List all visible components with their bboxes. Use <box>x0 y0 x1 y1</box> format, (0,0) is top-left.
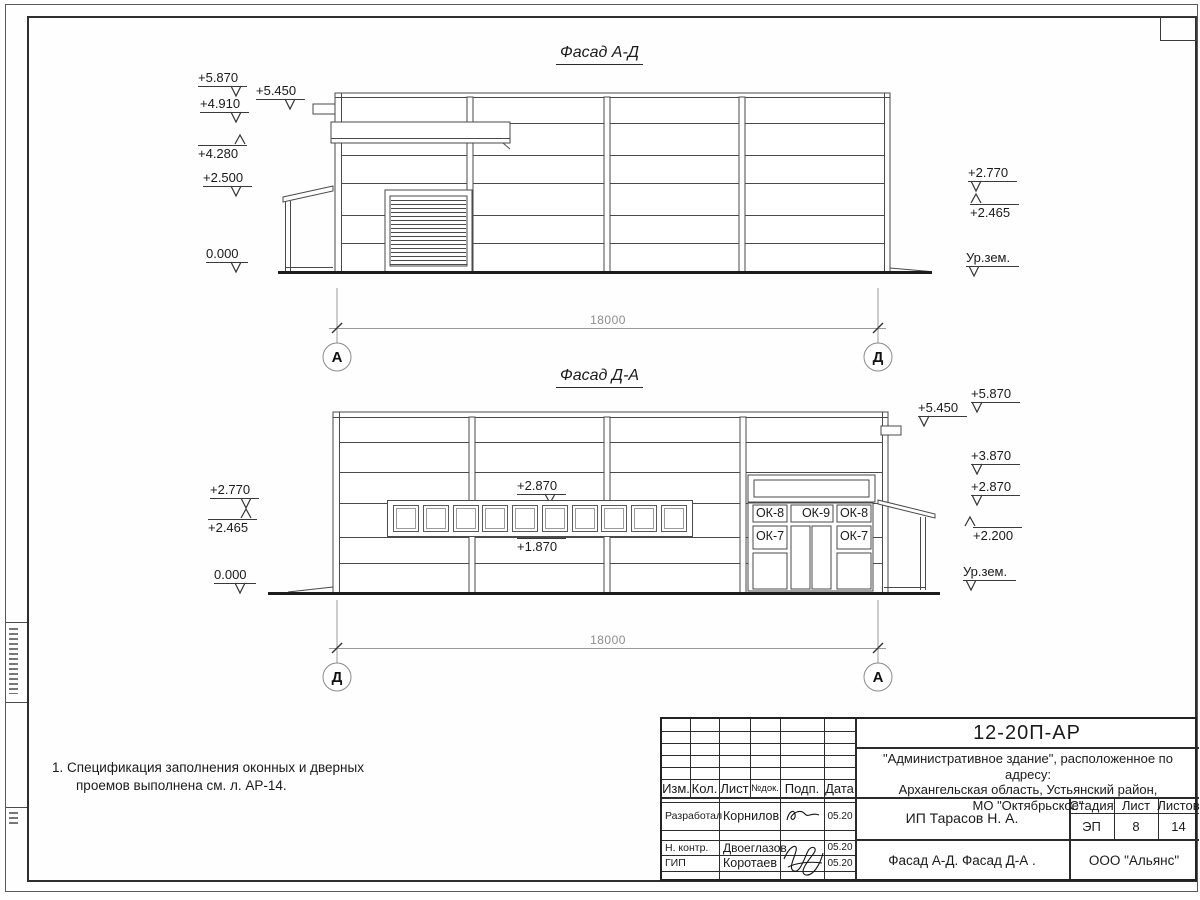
tb-header-ndok: №док. <box>750 779 780 797</box>
title-block-line <box>662 830 855 831</box>
note-line1: 1. Спецификация заполнения оконных и две… <box>52 760 364 775</box>
tb-name-ncontrol: Двоеглазов <box>720 840 780 855</box>
window <box>542 505 568 532</box>
signature-ncontrol-gip <box>780 839 826 879</box>
window <box>423 505 449 532</box>
roof-pipe <box>881 426 901 435</box>
axis-circle-label: А <box>863 669 893 686</box>
axis-circle-label: Д <box>863 349 893 366</box>
title-block-line <box>662 743 855 744</box>
elevation-mark: +2.770 <box>210 483 259 499</box>
tb-role-developer: Разработал <box>662 802 719 830</box>
tb-sheet-title: Фасад А-Д. Фасад Д-А . <box>855 839 1069 881</box>
elevation-mark: +4.910 <box>200 97 249 113</box>
tb-stage-value: ЭП <box>1069 813 1114 839</box>
elevation-mark: Ур.зем. <box>966 251 1019 267</box>
title-block-line <box>662 767 855 768</box>
elevation-mark: +2.465 <box>970 204 1019 220</box>
title-block-line <box>855 747 1199 749</box>
title-block-line <box>662 755 855 756</box>
tb-header-izm: Изм. <box>662 779 690 797</box>
elevation-mark: +5.870 <box>971 387 1020 403</box>
window-label-ok7: ОК-7 <box>753 529 787 543</box>
tb-sheets-label: Листов <box>1158 797 1199 813</box>
tb-name-gip: Коротаев <box>720 855 780 871</box>
tb-client: ИП Тарасов Н. А. <box>855 797 1069 839</box>
tb-role-ncontrol: Н. контр. <box>662 840 719 855</box>
entrance-door-leaf <box>812 526 831 589</box>
note-line2: проемов выполнена см. л. АР-14. <box>76 778 287 793</box>
tb-doc-code: 12-20П-АР <box>855 719 1199 747</box>
elevation-mark: +2.870 <box>971 480 1020 496</box>
window-label-ok8: ОК-8 <box>837 506 871 520</box>
elevation-mark: 0.000 <box>214 568 256 584</box>
window-label-ok7: ОК-7 <box>837 529 871 543</box>
window <box>512 505 538 532</box>
elevation-mark: +2.465 <box>208 519 257 535</box>
window <box>631 505 657 532</box>
elevation-mark: +3.870 <box>971 449 1020 465</box>
tb-stage-label: Стадия <box>1069 797 1114 813</box>
dimension-label: 18000 <box>585 633 631 647</box>
window <box>601 505 627 532</box>
tb-project-line1: "Административное здание", расположенное… <box>860 751 1196 782</box>
facade1-building <box>283 93 930 272</box>
drawing-sheet: Фасад А-Д Фасад Д-А +5.870 +5.450 +4.910… <box>0 0 1200 900</box>
elevation-mark: +5.870 <box>198 71 247 87</box>
elevation-mark: +2.200 <box>973 527 1022 543</box>
tb-project-line2: Архангельская область, Устьянский район, <box>860 782 1196 798</box>
tb-name-developer: Корнилов <box>720 802 780 830</box>
tb-header-kol: Кол. <box>690 779 719 797</box>
elevation-mark: +4.280 <box>198 145 247 161</box>
elevation-mark: +2.870 <box>517 479 566 495</box>
tb-company: ООО "Альянс" <box>1069 839 1199 881</box>
facade1-title: Фасад А-Д <box>556 44 643 65</box>
window <box>482 505 508 532</box>
elevation-mark: +1.870 <box>517 538 566 554</box>
window <box>661 505 687 532</box>
tb-header-data: Дата <box>824 779 855 797</box>
elevation-mark: +2.770 <box>968 166 1017 182</box>
lean-to-left <box>283 186 333 272</box>
title-block: Изм. Кол. Лист №док. Подп. Дата Разработ… <box>660 717 1197 881</box>
tb-header-list: Лист <box>719 779 750 797</box>
elevation-mark: 0.000 <box>206 247 248 263</box>
roof-pipe <box>313 104 335 114</box>
window <box>453 505 479 532</box>
elevation-mark: +2.500 <box>203 171 252 187</box>
entrance-canopy <box>331 122 510 143</box>
elevation-mark: Ур.зем. <box>963 565 1016 581</box>
window <box>572 505 598 532</box>
elevation-mark: +5.450 <box>256 84 305 100</box>
window-label-ok9: ОК-9 <box>795 506 837 520</box>
tb-role-gip: ГИП <box>662 855 719 871</box>
window <box>393 505 419 532</box>
window-band <box>387 500 693 537</box>
window-label-ok8: ОК-8 <box>753 506 787 520</box>
title-block-line <box>662 871 855 872</box>
tb-sheet-number: 8 <box>1114 813 1158 839</box>
tb-header-podp: Подп. <box>780 779 824 797</box>
tb-sheet-label: Лист <box>1114 797 1158 813</box>
facade1-dimension <box>323 288 892 371</box>
roller-door <box>385 190 472 272</box>
signature-developer <box>784 804 822 828</box>
facade2-title: Фасад Д-А <box>556 367 643 388</box>
title-block-line <box>662 731 855 732</box>
tb-date-ncontrol: 05.20 <box>825 840 855 855</box>
entrance-door-leaf <box>791 526 810 589</box>
title-block-line <box>662 797 855 799</box>
axis-circle-label: А <box>322 349 352 366</box>
tb-date-gip: 05.20 <box>825 855 855 871</box>
dimension-label: 18000 <box>585 313 631 327</box>
axis-circle-label: Д <box>322 669 352 686</box>
tb-sheets-total: 14 <box>1158 813 1199 839</box>
tb-date-developer: 05.20 <box>825 802 855 830</box>
elevation-mark: +5.450 <box>918 401 967 417</box>
